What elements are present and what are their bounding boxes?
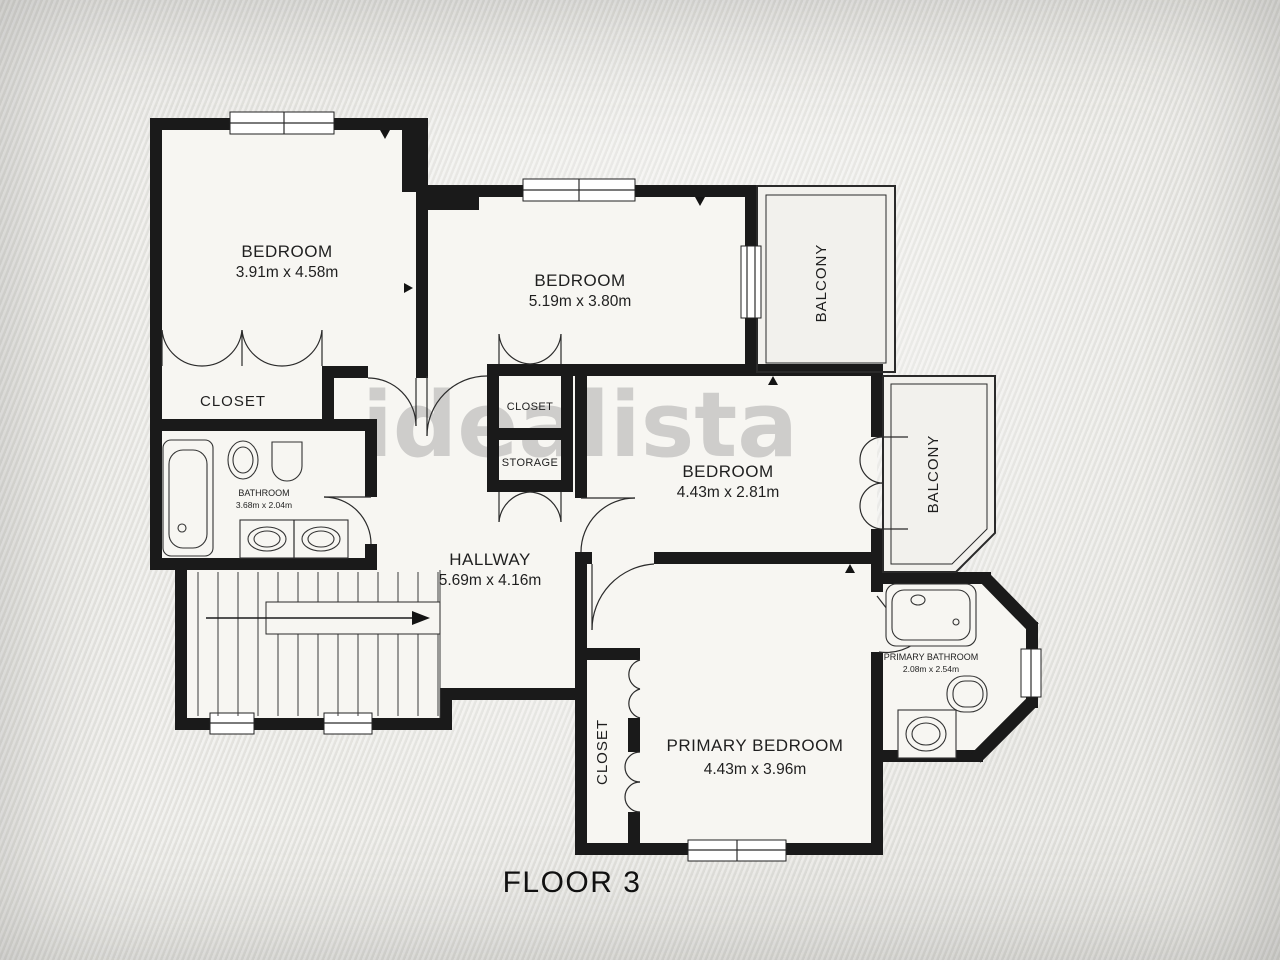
bidet [272, 442, 302, 481]
room-label: BEDROOM [534, 271, 625, 290]
toilet [898, 710, 956, 758]
bathtub [163, 440, 213, 556]
room-dims: 3.68m x 2.04m [236, 500, 292, 510]
balcony-right: BALCONY [925, 435, 942, 514]
room-storage: STORAGE [502, 457, 558, 469]
room-label: PRIMARY BATHROOM [884, 652, 979, 662]
toilet [228, 441, 258, 479]
window [210, 713, 254, 734]
room-label: HALLWAY [449, 550, 531, 569]
window [230, 112, 334, 134]
floor-plan-image: idealista [0, 0, 1280, 960]
room-label: BALCONY [813, 244, 830, 323]
room-label: PRIMARY BEDROOM [667, 736, 844, 755]
room-dims: 5.19m x 3.80m [529, 293, 632, 310]
window [324, 713, 372, 734]
room-closet-primary: CLOSET [594, 719, 611, 785]
room-label: CLOSET [507, 401, 553, 413]
room-label: BEDROOM [241, 242, 332, 261]
room-dims: 3.91m x 4.58m [236, 264, 339, 281]
sliding-glass-door [741, 246, 761, 318]
room-closet-hall: CLOSET [507, 401, 553, 413]
window [1021, 649, 1041, 697]
floor-title: FLOOR 3 [503, 866, 642, 899]
bathtub [886, 584, 976, 646]
room-label: CLOSET [594, 719, 611, 785]
room-dims: 4.43m x 2.81m [677, 484, 780, 501]
double-sink [240, 520, 348, 558]
sink [947, 676, 987, 712]
window [688, 840, 786, 861]
room-label: STORAGE [502, 457, 558, 469]
room-label: CLOSET [200, 393, 266, 410]
room-dims: 4.43m x 3.96m [704, 761, 807, 778]
room-dims: 5.69m x 4.16m [439, 572, 542, 589]
room-dims: 2.08m x 2.54m [903, 664, 959, 674]
room-label: BATHROOM [238, 488, 289, 498]
balcony-top: BALCONY [813, 244, 830, 323]
window [523, 179, 635, 201]
room-label: BEDROOM [682, 462, 773, 481]
room-label: BALCONY [925, 435, 942, 514]
floor-plan-page: idealista [0, 0, 1280, 960]
room-closet-main: CLOSET [200, 393, 266, 410]
